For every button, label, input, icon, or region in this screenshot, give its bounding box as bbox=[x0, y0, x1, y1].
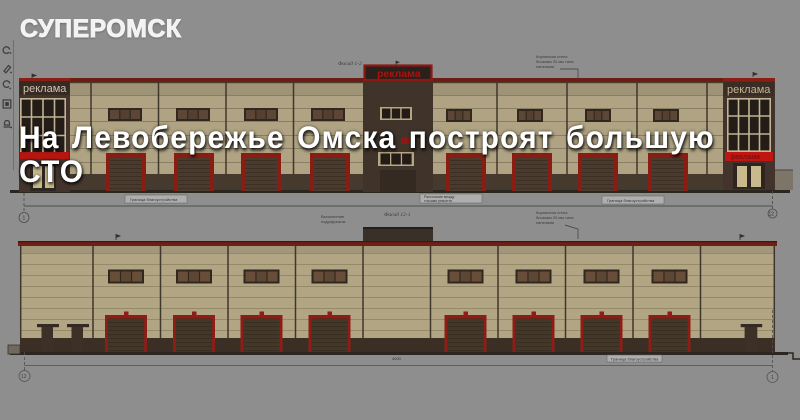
svg-text:реклама: реклама bbox=[731, 154, 760, 161]
svg-text:реклама: реклама bbox=[377, 68, 421, 80]
svg-text:1: 1 bbox=[23, 216, 26, 222]
svg-text:4000: 4000 bbox=[392, 356, 402, 361]
svg-text:12: 12 bbox=[21, 374, 27, 380]
svg-text:1: 1 bbox=[771, 375, 774, 381]
svg-text:точками ремонта: точками ремонта bbox=[424, 199, 452, 203]
svg-text:Граница благоустройства: Граница благоустройства bbox=[607, 198, 655, 203]
svg-text:Фасад 12-1: Фасад 12-1 bbox=[384, 211, 411, 218]
svg-text:панелями: панелями bbox=[536, 64, 554, 69]
svg-text:12: 12 bbox=[769, 212, 775, 218]
svg-text:реклама: реклама bbox=[727, 84, 771, 96]
svg-text:подрядчиком: подрядчиком bbox=[321, 219, 346, 224]
svg-text:Граница благоустройства: Граница благоустройства bbox=[611, 357, 659, 362]
svg-text:Граница благоустройства: Граница благоустройства bbox=[130, 197, 178, 202]
svg-text:реклама: реклама bbox=[23, 83, 67, 95]
svg-text:Фасад 1-2: Фасад 1-2 bbox=[338, 60, 362, 67]
svg-text:панелями: панелями bbox=[536, 220, 554, 225]
